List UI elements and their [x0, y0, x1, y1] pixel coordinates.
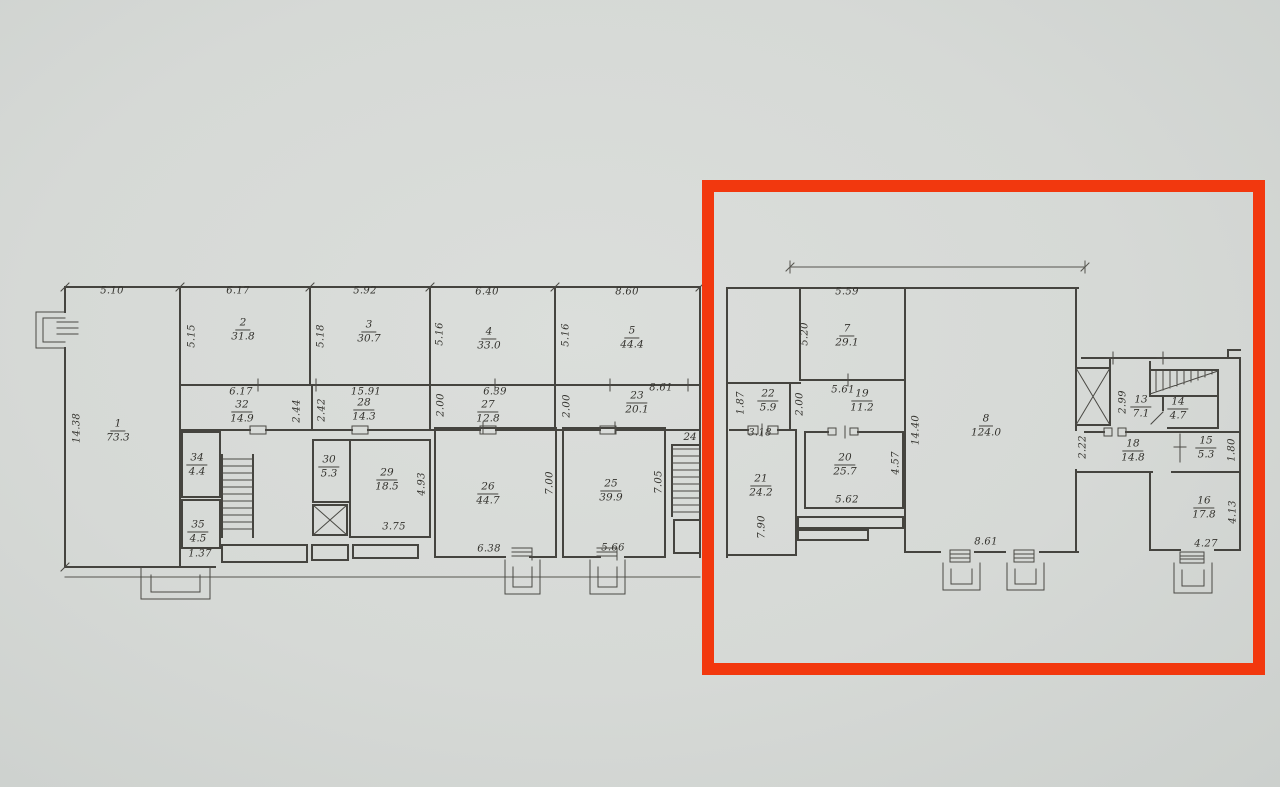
dimension-label: 2.00 [795, 392, 806, 415]
room-area: 12.8 [476, 413, 499, 425]
room-label-13: 137.1 [1130, 394, 1151, 419]
dimension-label: 2.99 [1118, 390, 1129, 413]
room-area: 4.7 [1167, 410, 1188, 422]
dimension-label: 5.15 [187, 324, 198, 347]
room-area: 44.7 [476, 495, 499, 507]
room-label-34: 344.4 [186, 452, 207, 477]
room-area: 73.3 [106, 432, 129, 444]
dimension-label: 5.92 [353, 286, 376, 297]
room-area: 20.1 [625, 404, 648, 416]
room-label-23: 2320.1 [625, 390, 648, 415]
room-number: 3 [362, 319, 377, 332]
room-area: 44.4 [620, 339, 643, 351]
room-number: 2 [236, 317, 251, 330]
room-area: 124.0 [971, 427, 1001, 439]
plan-labels-layer: 173.3231.8330.7433.0544.43214.92814.3271… [0, 0, 1280, 787]
room-area: 24.2 [749, 487, 772, 499]
room-number: 21 [750, 473, 771, 486]
dimension-label: 14.38 [72, 413, 83, 443]
dimension-label: 5.62 [835, 495, 858, 506]
dimension-label: 3.18 [748, 428, 771, 439]
dimension-label: 4.13 [1228, 500, 1239, 523]
room-label-15: 155.3 [1195, 435, 1216, 460]
room-number: 4 [482, 326, 497, 339]
dimension-label: 5.20 [800, 322, 811, 345]
dimension-label: 7.90 [757, 515, 768, 538]
dimension-label: 6.39 [483, 387, 506, 398]
room-number: 27 [477, 399, 498, 412]
room-area: 7.1 [1130, 408, 1151, 420]
room-number: 15 [1195, 435, 1216, 448]
room-area: 30.7 [357, 333, 380, 345]
room-area: 25.7 [833, 466, 856, 478]
floor-plan-photo: 173.3231.8330.7433.0544.43214.92814.3271… [0, 0, 1280, 787]
dimension-label: 6.17 [226, 286, 249, 297]
room-number: 28 [353, 397, 374, 410]
dimension-label: 5.10 [100, 286, 123, 297]
room-label-26: 2644.7 [476, 481, 499, 506]
room-area: 29.1 [835, 337, 858, 349]
room-area: 14.9 [230, 413, 253, 425]
room-number: 32 [231, 399, 252, 412]
dimension-label: 8.61 [649, 383, 672, 394]
room-area: 5.3 [318, 468, 339, 480]
room-number: 23 [626, 390, 647, 403]
room-number: 30 [318, 454, 339, 467]
room-label-30: 305.3 [318, 454, 339, 479]
dimension-label: 5.18 [316, 324, 327, 347]
room-number: 24 [679, 432, 700, 444]
room-label-14: 144.7 [1167, 396, 1188, 421]
room-number: 14 [1167, 396, 1188, 409]
room-number: 20 [834, 452, 855, 465]
room-number: 13 [1130, 394, 1151, 407]
dimension-label: 1.37 [188, 549, 211, 560]
dimension-label: 5.59 [835, 287, 858, 298]
room-label-25: 2539.9 [599, 478, 622, 503]
room-area: 33.0 [477, 340, 500, 352]
dimension-label: 5.16 [561, 323, 572, 346]
room-number: 8 [979, 413, 994, 426]
dimension-label: 6.17 [229, 387, 252, 398]
room-number: 1 [111, 418, 126, 431]
dimension-label: 8.60 [615, 287, 638, 298]
room-area: 14.3 [352, 411, 375, 423]
room-label-32: 3214.9 [230, 399, 253, 424]
room-label-16: 1617.8 [1192, 495, 1215, 520]
dimension-label: 2.00 [436, 393, 447, 416]
dimension-label: 5.66 [601, 543, 624, 554]
dimension-label: 4.27 [1194, 539, 1217, 550]
room-number: 25 [600, 478, 621, 491]
dimension-label: 1.87 [736, 391, 747, 414]
dimension-label: 15.91 [351, 387, 381, 398]
dimension-label: 6.38 [477, 544, 500, 555]
dimension-label: 7.00 [545, 471, 556, 494]
room-label-29: 2918.5 [375, 467, 398, 492]
room-area: 11.2 [850, 402, 873, 414]
dimension-label: 8.61 [974, 537, 997, 548]
dimension-label: 2.42 [317, 398, 328, 421]
room-area: 5.9 [757, 402, 778, 414]
room-area: 4.4 [186, 466, 207, 478]
room-label-2: 231.8 [231, 317, 254, 342]
room-label-1: 173.3 [106, 418, 129, 443]
dimension-label: 4.93 [417, 472, 428, 495]
dimension-label: 6.40 [475, 287, 498, 298]
dimension-label: 2.00 [562, 394, 573, 417]
room-label-8: 8124.0 [971, 413, 1001, 438]
room-label-35: 354.5 [187, 519, 208, 544]
room-label-5: 544.4 [620, 325, 643, 350]
room-area: 14.8 [1121, 452, 1144, 464]
room-number: 5 [625, 325, 640, 338]
room-label-20: 2025.7 [833, 452, 856, 477]
room-number: 22 [757, 388, 778, 401]
room-number: 18 [1122, 438, 1143, 451]
dimension-label: 5.61 [831, 385, 854, 396]
dimension-label: 1.80 [1227, 438, 1238, 461]
dimension-label: 7.05 [654, 470, 665, 493]
room-number: 34 [186, 452, 207, 465]
room-number: 26 [477, 481, 498, 494]
room-number: 29 [376, 467, 397, 480]
dimension-label: 14.40 [911, 415, 922, 445]
dimension-label: 4.57 [891, 451, 902, 474]
room-label-22: 225.9 [757, 388, 778, 413]
room-label-4: 433.0 [477, 326, 500, 351]
room-area: 5.3 [1195, 449, 1216, 461]
room-label-27: 2712.8 [476, 399, 499, 424]
dimension-label: 2.44 [292, 399, 303, 422]
room-number: 35 [187, 519, 208, 532]
room-area: 17.8 [1192, 509, 1215, 521]
dimension-label: 2.22 [1078, 435, 1089, 458]
dimension-label: 5.16 [435, 322, 446, 345]
room-area: 31.8 [231, 331, 254, 343]
room-number: 7 [840, 323, 855, 336]
room-label-21: 2124.2 [749, 473, 772, 498]
room-number: 16 [1193, 495, 1214, 508]
room-area: 18.5 [375, 481, 398, 493]
room-area: 39.9 [599, 492, 622, 504]
room-label-24: 24 [679, 432, 700, 444]
room-label-18: 1814.8 [1121, 438, 1144, 463]
room-label-3: 330.7 [357, 319, 380, 344]
room-label-28: 2814.3 [352, 397, 375, 422]
room-area: 4.5 [187, 533, 208, 545]
room-label-7: 729.1 [835, 323, 858, 348]
dimension-label: 3.75 [382, 522, 405, 533]
